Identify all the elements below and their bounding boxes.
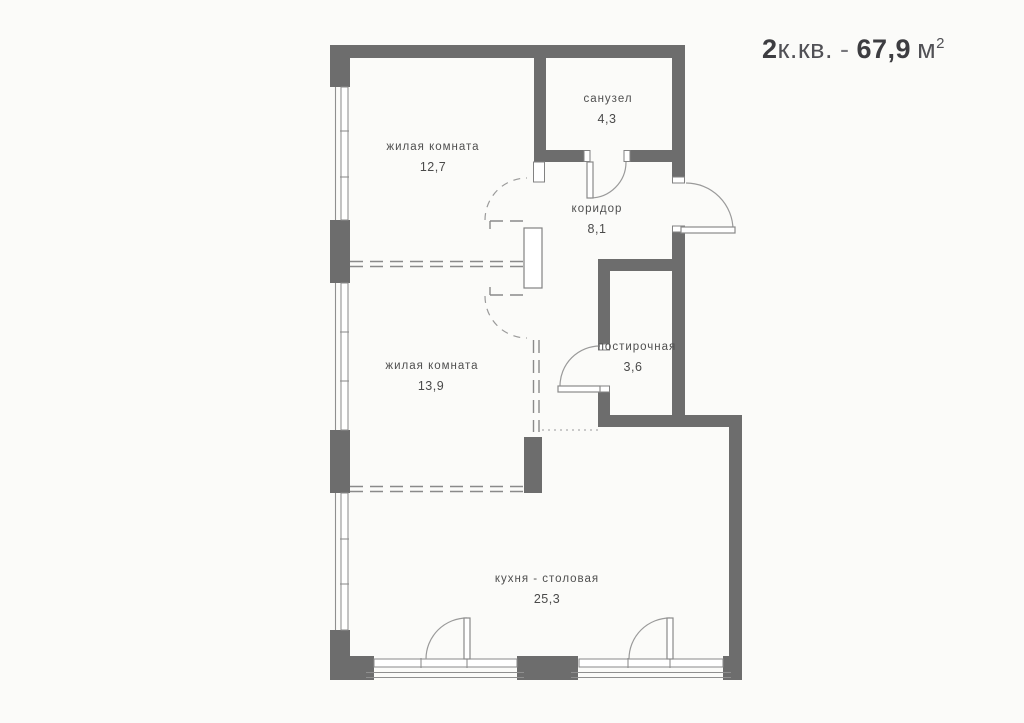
wall-laundry-left-upper [598,259,610,344]
room-area-bathroom: 4,3 [598,112,617,126]
room-area-corridor: 8,1 [588,222,607,236]
room-area-kitchen: 25,3 [534,592,560,606]
wall-right-bottom [729,415,742,680]
window-bottom-2 [571,618,731,678]
wall-laundry-left-lower [598,392,610,415]
jamb-bathroom-right [624,151,630,162]
entrance-door-leaf [681,227,735,233]
planned-partitions [350,178,598,492]
jamb-bathroom-left [584,151,590,162]
jamb-room1-door [534,162,545,182]
bathroom-door-arc [590,162,626,198]
room-label-bathroom: санузел [583,93,632,105]
balcony-door-1-leaf [464,618,470,659]
room-area-living2: 13,9 [418,379,444,393]
room-label-laundry: постирочная [598,341,677,353]
room-labels: жилая комната 12,7 санузел 4,3 коридор 8… [385,93,676,606]
entrance-door [681,183,735,233]
planned-door-2-arc [485,296,527,338]
laundry-door-leaf [558,386,600,392]
balcony-door-1-arc [426,618,467,659]
window-left-1 [336,87,350,220]
room-label-kitchen: кухня - столовая [495,573,599,585]
entrance-door-arc [686,183,733,230]
room-label-corridor: коридор [572,203,623,215]
room-area-laundry: 3,6 [624,360,643,374]
wall-top [330,45,685,58]
room-label-living2: жилая комната [385,360,478,372]
planned-pier [524,228,542,288]
window-left-2 [336,283,350,430]
floor-plan-drawing: жилая комната 12,7 санузел 4,3 коридор 8… [0,0,1024,723]
wall-left-pier-1 [330,220,350,283]
wall-laundry-top [610,259,672,271]
room-area-living1: 12,7 [420,160,446,174]
bathroom-door-leaf [587,162,593,198]
balcony-door-2-arc [629,618,670,659]
jamb-entrance-top [673,177,685,183]
balcony-door-2-leaf [667,618,673,659]
laundry-door-arc [560,346,600,386]
bathroom-door [587,162,626,198]
wall-right-top [672,45,685,177]
wall-bathroom-bottom-right [630,150,672,162]
laundry-door [558,346,600,392]
window-left-3 [336,493,350,630]
wall-right-mid [672,232,685,415]
window-bottom-1 [366,618,524,678]
wall-central-pier [524,437,542,493]
wall-corner-top-left [330,45,350,87]
room-label-living1: жилая комната [386,141,479,153]
wall-bathroom-bottom-left [534,150,584,162]
floor-plan-page: 2к.кв.-67,9м2 [0,0,1024,723]
wall-bottom-pier [517,656,578,680]
wall-left-pier-2 [330,430,350,493]
wall-bathroom-left [534,58,546,162]
wall-jog-horizontal [598,415,742,427]
planned-door-1-arc [485,178,527,220]
wall-corner-bottom-left-foot [330,656,374,680]
